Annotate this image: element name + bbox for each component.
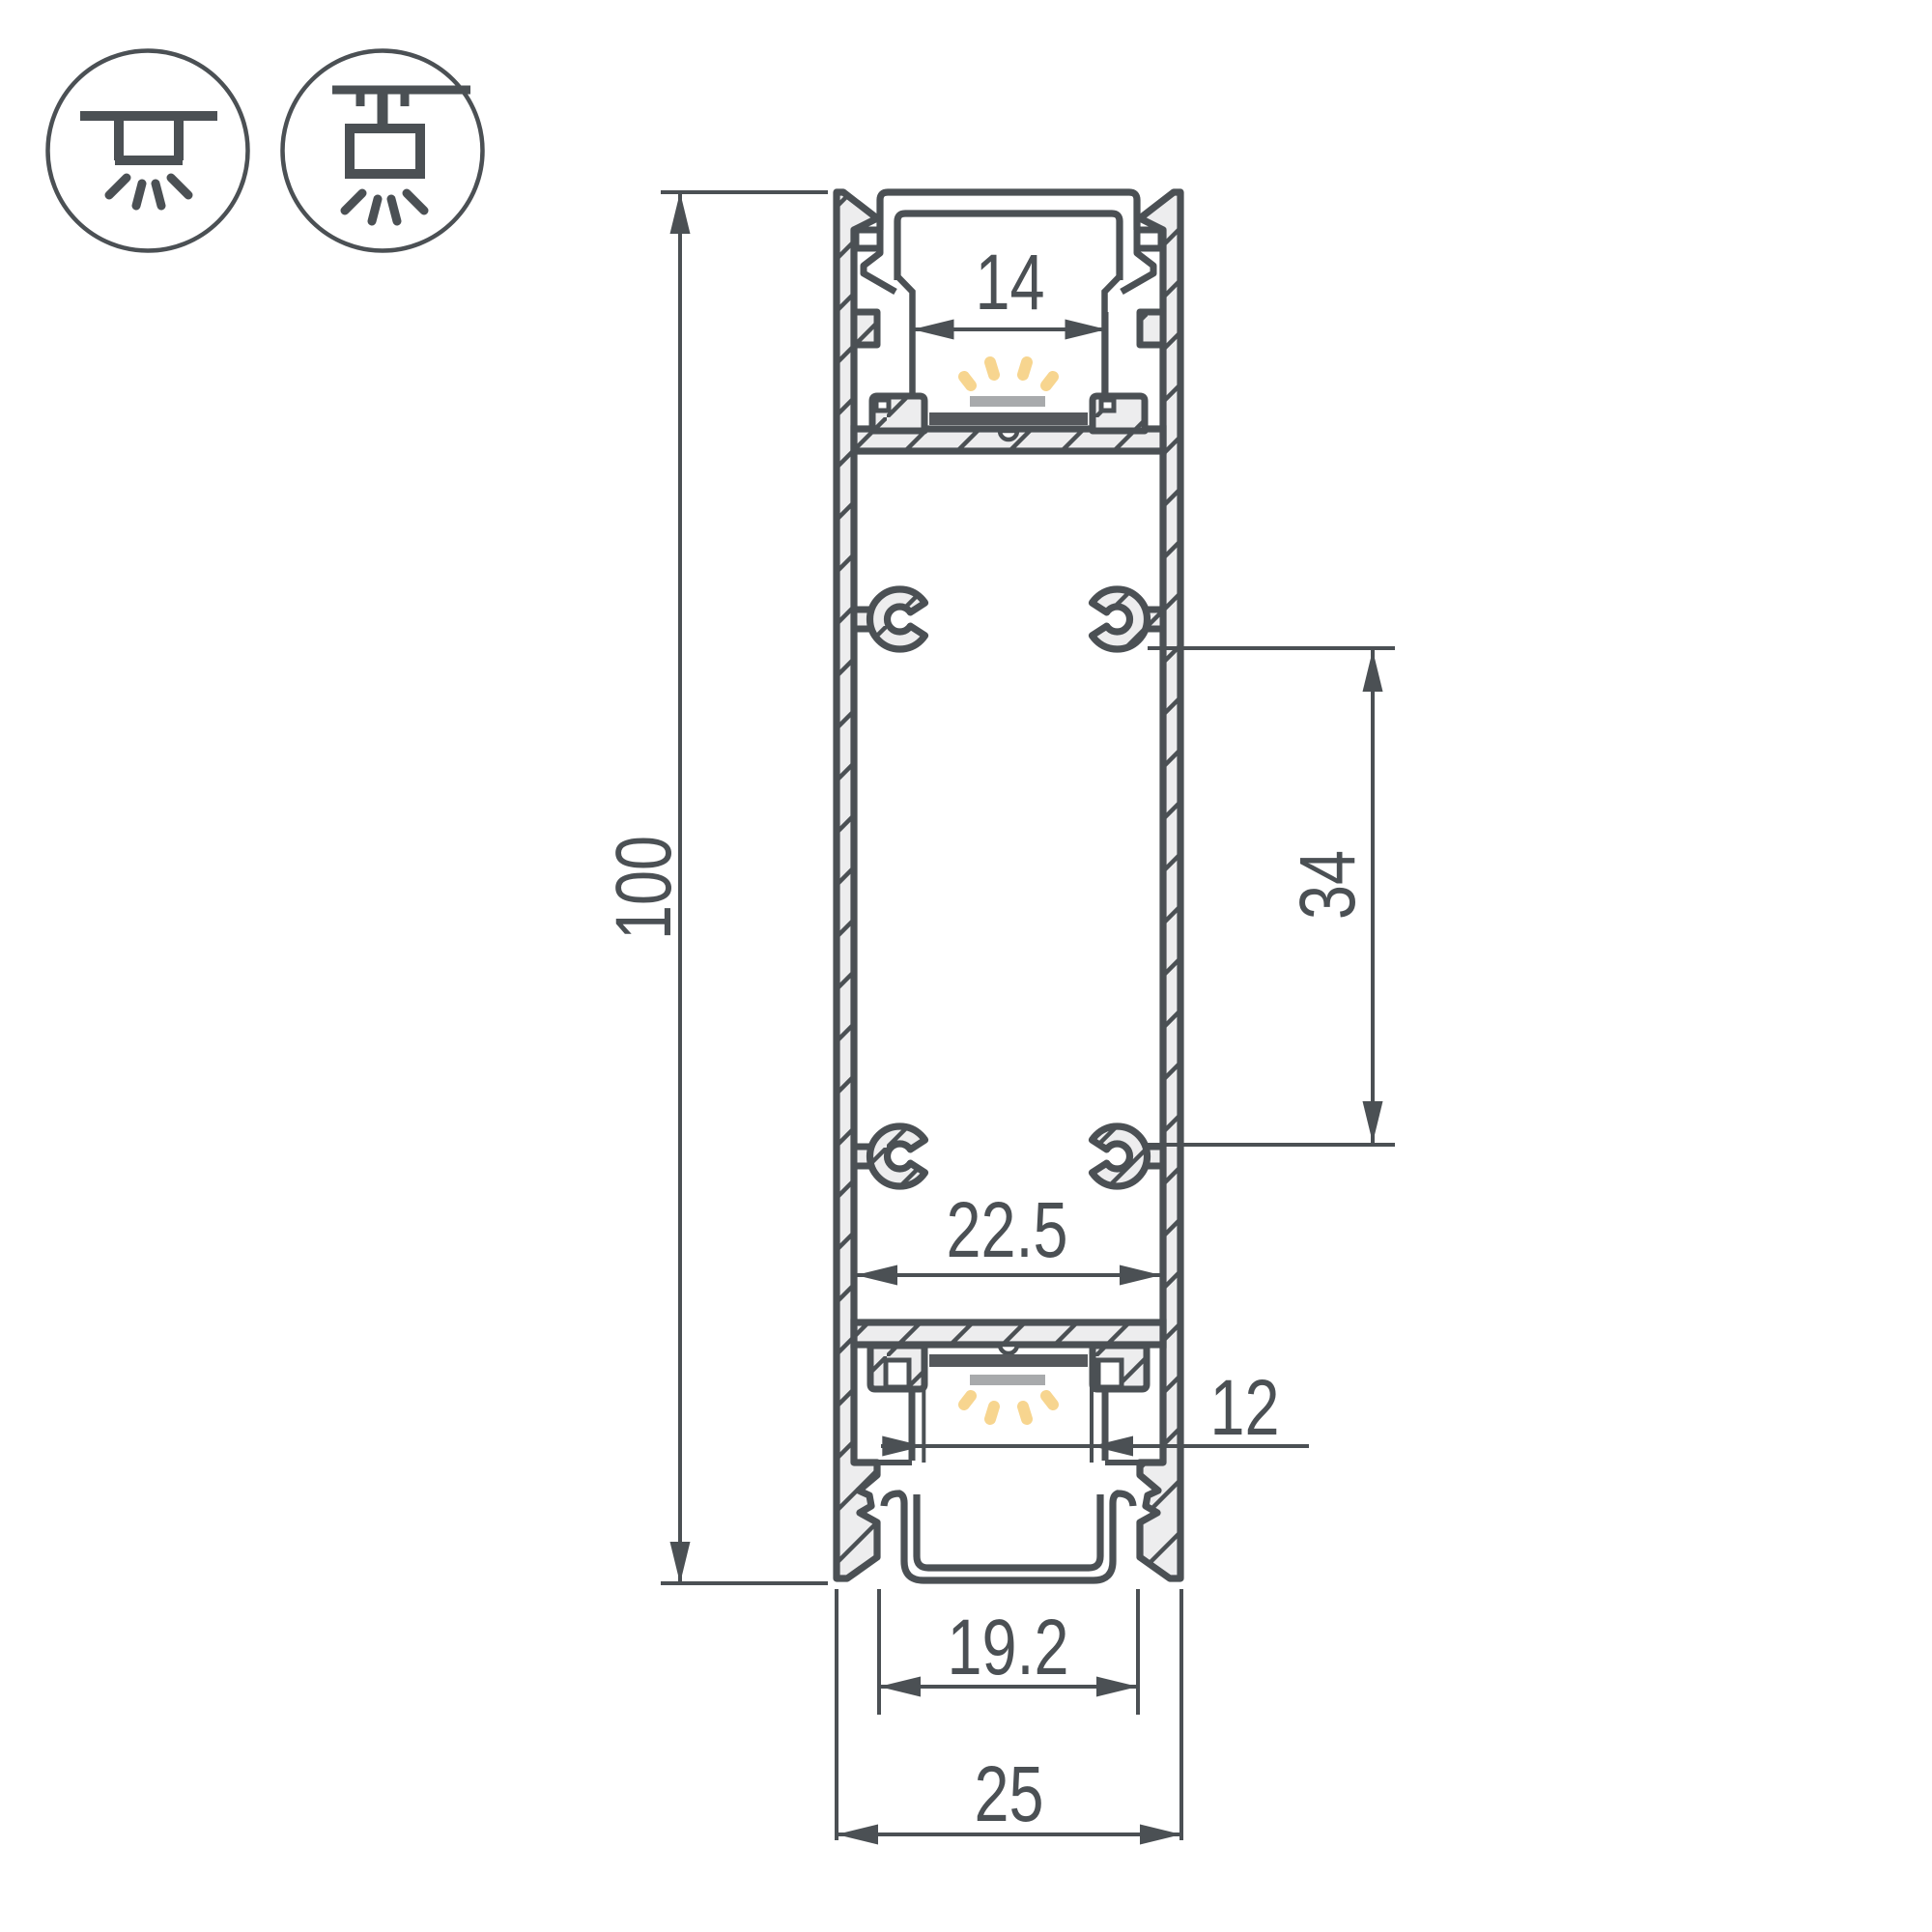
- svg-text:34: 34: [1283, 850, 1372, 920]
- svg-text:25: 25: [974, 1749, 1043, 1838]
- svg-text:12: 12: [1209, 1363, 1279, 1452]
- svg-text:19.2: 19.2: [947, 1603, 1068, 1691]
- svg-text:22.5: 22.5: [946, 1185, 1067, 1274]
- svg-text:14: 14: [975, 238, 1044, 327]
- svg-text:100: 100: [599, 836, 688, 940]
